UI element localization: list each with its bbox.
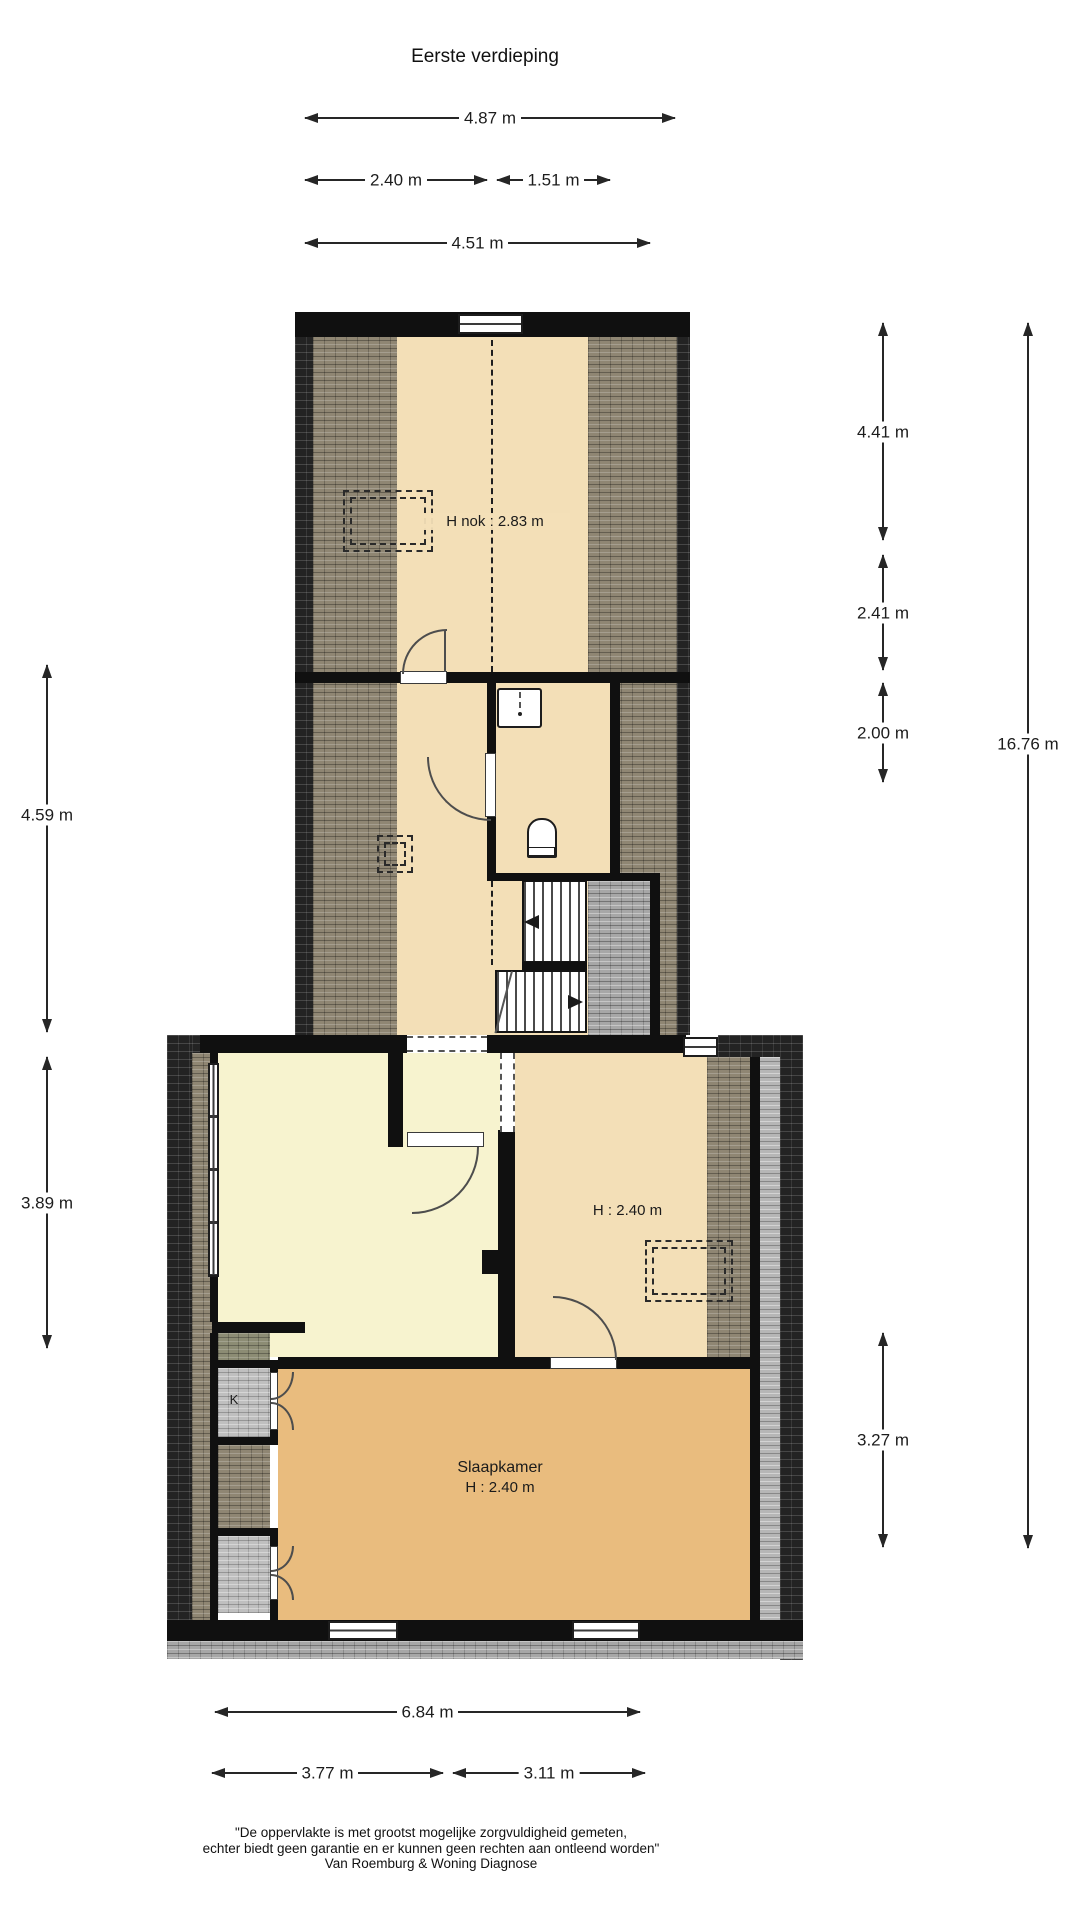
dim-top-right-label: 1.51 m [523,170,585,191]
roof-patch-between-closets [218,1445,270,1528]
roof-slope-tiles-right-lower [707,1057,750,1357]
roof-flat-strip-right [760,1057,780,1640]
window-lowerblock-top-right [683,1037,718,1057]
wall-closet-k-bottom [212,1437,278,1445]
olive-roof-patch [218,1333,270,1360]
roof-window-outline-hallway [377,835,413,873]
dim-top-inner-label: 4.51 m [447,233,509,254]
dim-left-upper-label: 4.59 m [16,805,78,826]
dim-top-inner: 4.51 m [305,242,650,244]
sink-tap-icon [519,692,521,708]
wall-closet-k-top [212,1360,278,1368]
window-attic-top [458,314,523,334]
toilet-cistern-icon [528,847,555,856]
wall-lowerblock-bottom [167,1620,803,1641]
page-title: Eerste verdieping [285,46,685,68]
ridge-line-landing [491,881,493,965]
dim-bottom-right-label: 3.11 m [519,1763,580,1784]
disclaimer-line-1: "De oppervlakte is met grootst mogelijke… [131,1825,731,1841]
wall-stub [482,1250,498,1274]
wall-between-rooms [498,1130,515,1357]
dim-bottom-left: 3.77 m [212,1772,443,1774]
floorplan-page: Eerste verdieping [0,0,1080,1920]
wall-flatroof-right [650,881,660,1035]
wall-bathroom-right [610,683,620,873]
wall-closet-column-west [210,1333,218,1620]
wall-bathroom-left-upper [487,683,496,755]
dim-right-mid-label: 2.41 m [852,602,914,623]
dim-bottom-left-label: 3.77 m [297,1763,359,1784]
dim-right-mid: 2.41 m [882,555,884,670]
wall-band-divider-right [447,672,690,683]
dim-right-bedroom-label: 3.27 m [852,1430,914,1451]
opening-between-rooms [500,1053,515,1132]
dim-top-right: 1.51 m [497,179,610,181]
wall-lowerblock-top-right [487,1035,686,1053]
wall-closet-k-right-upper [270,1360,278,1372]
wall-vestibule-left [388,1035,403,1147]
dim-top-left: 2.40 m [305,179,487,181]
wall-closet-lower-right-upper [270,1536,278,1546]
roof-edge-tiles-right-lower [780,1035,803,1660]
window-bottom-left [328,1621,398,1640]
dim-right-total-label: 16.76 m [992,734,1063,755]
stairs-direction-arrow-up [524,915,539,929]
dim-right-total: 16.76 m [1027,323,1029,1548]
window-left-room-west [208,1063,219,1277]
window-bottom-right [572,1621,640,1640]
dim-right-bedroom: 3.27 m [882,1333,884,1547]
dim-bottom-full: 6.84 m [215,1711,640,1713]
roof-eaves-tiles-bottom [167,1641,803,1659]
dim-left-lower: 3.89 m [46,1057,48,1348]
wall-bedroom-top-right [617,1357,760,1369]
disclaimer-line-2: echter biedt geen garantie en er kunnen … [131,1841,731,1857]
opening-stair-landing [407,1036,487,1052]
ridge-line-attic [491,340,493,672]
room-label-bedroom-name: Slaapkamer [400,1459,600,1477]
door-leaf-glazed-left-room [407,1132,484,1147]
disclaimer: "De oppervlakte is met grootst mogelijke… [131,1825,731,1872]
roof-corner-tiles-top-right [718,1035,780,1057]
dim-top-full: 4.87 m [305,117,675,119]
wall-stair-separator [522,962,587,970]
roof-window-outline-right-room [645,1240,733,1302]
dim-right-stairs: 2.00 m [882,683,884,782]
dim-top-full-label: 4.87 m [459,108,521,129]
dim-bottom-right: 3.11 m [453,1772,645,1774]
sink-icon [497,688,542,728]
wall-band-divider-left [295,672,400,683]
wall-lowerblock-top-left [200,1035,407,1053]
toilet-icon [527,818,557,858]
dim-right-attic-label: 4.41 m [852,421,914,442]
wall-bedroom-top-left [278,1357,550,1369]
closet-lower-floor [218,1536,270,1613]
dim-top-left-label: 2.40 m [365,170,427,191]
room-label-right-room: H : 2.40 m [560,1202,695,1219]
wall-left-room-bottom [212,1322,305,1333]
dim-left-upper: 4.59 m [46,665,48,1032]
left-room-floor [218,1053,500,1357]
wall-lowerblock-right [750,1057,760,1640]
room-label-attic: H nok : 2.83 m [420,513,570,530]
wall-closet-lower-top [212,1528,278,1536]
room-label-closet-k: K [224,1392,244,1407]
sink-drain-icon [518,712,522,716]
wall-bathroom-bottom [487,873,660,881]
disclaimer-line-3: Van Roemburg & Woning Diagnose [131,1856,731,1872]
wall-closet-lower-right-lower [270,1600,278,1620]
dim-right-stairs-label: 2.00 m [852,722,914,743]
door-leaf-line-attic [444,630,446,672]
dim-right-attic: 4.41 m [882,323,884,540]
stairs-direction-arrow-down [568,995,583,1009]
roof-edge-tiles-left-lower [167,1035,192,1658]
wall-bathroom-left-lower [487,815,496,875]
room-label-bedroom-height: H : 2.40 m [400,1479,600,1496]
dim-bottom-full-label: 6.84 m [397,1702,459,1723]
dim-left-lower-label: 3.89 m [16,1192,78,1213]
flat-roof-beside-stairs [588,881,650,1035]
